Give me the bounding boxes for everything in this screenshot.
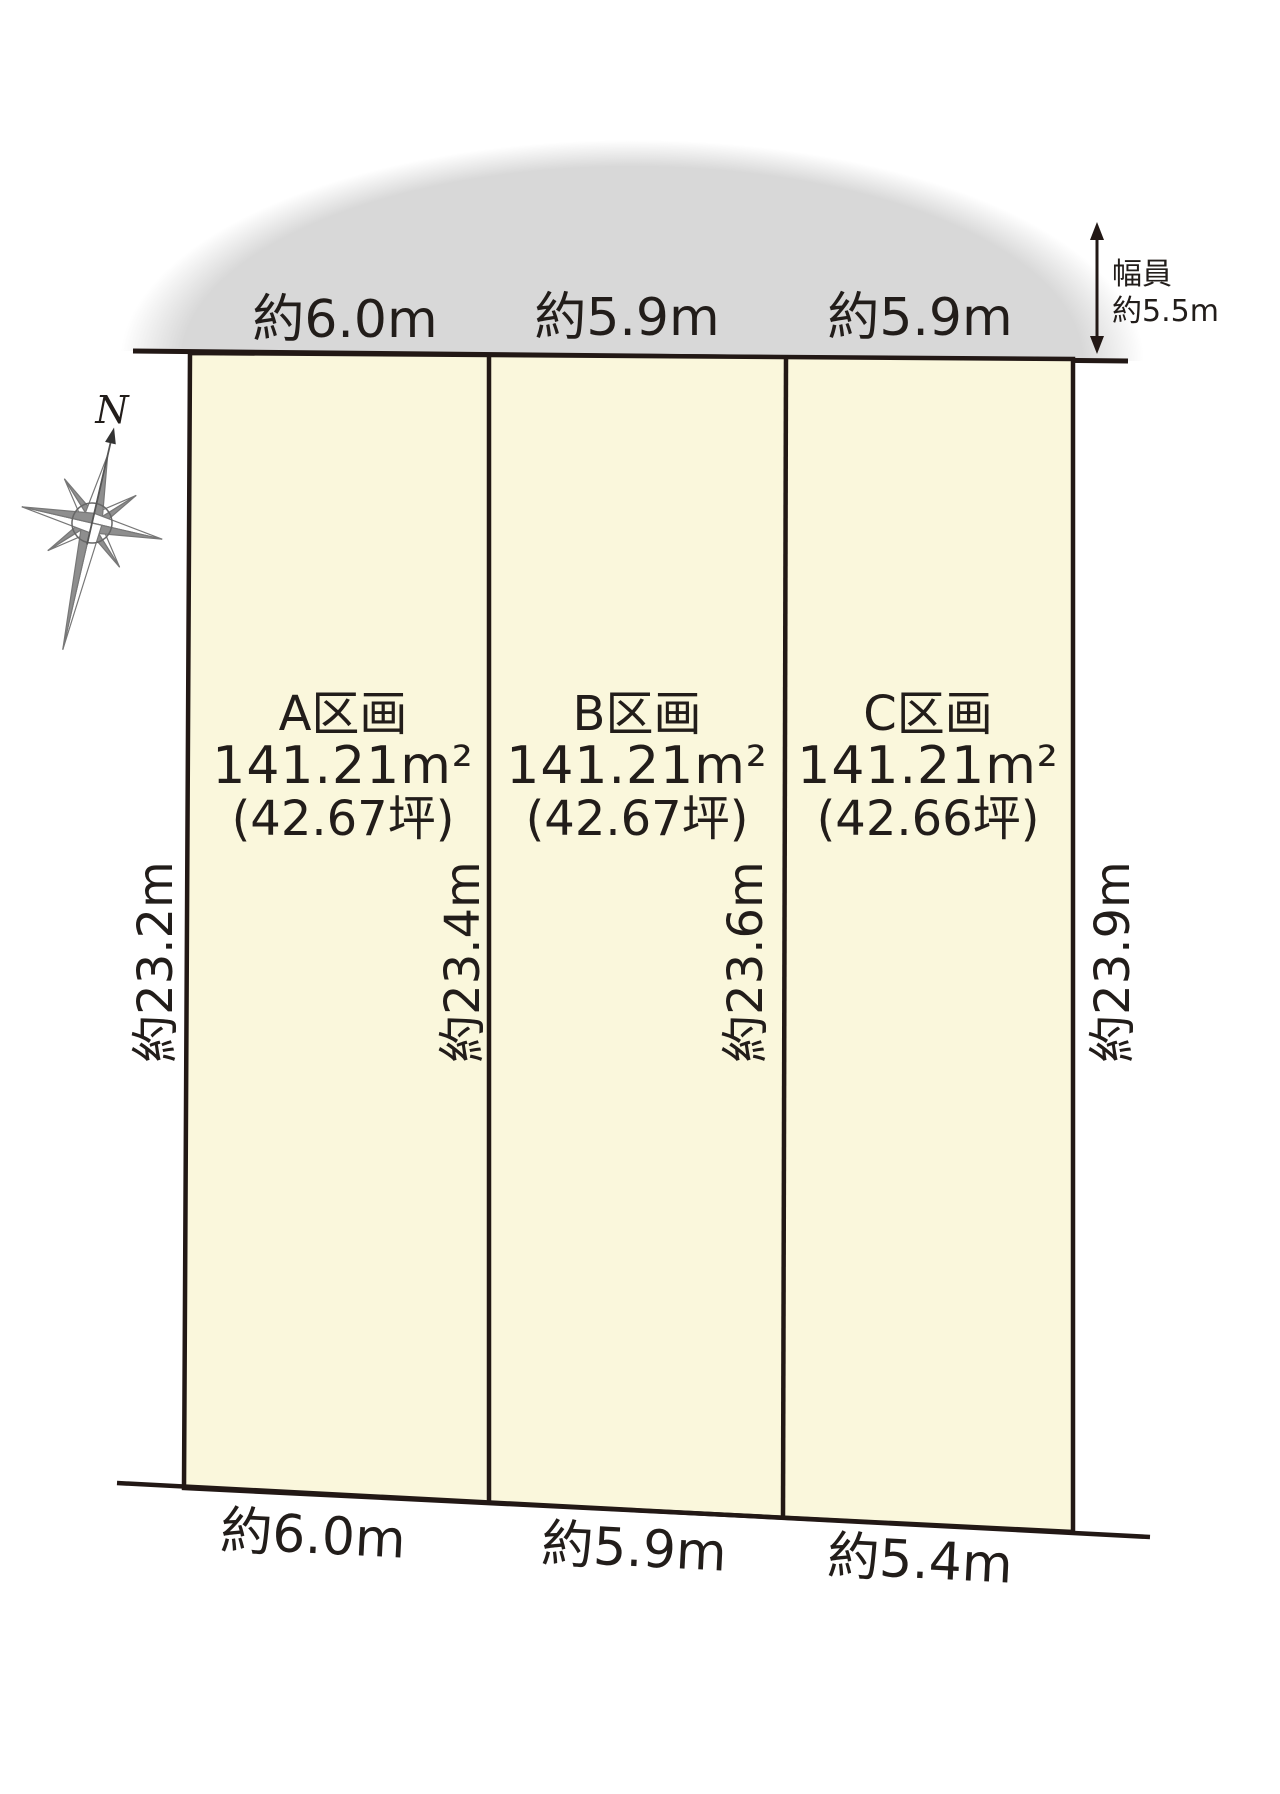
parcel-c-area-sqm: 141.21m²: [778, 740, 1078, 793]
compass-north-label: N: [90, 388, 134, 432]
parcel-c-label: C区画 141.21m² (42.66坪): [778, 688, 1078, 846]
parcels-outline: [184, 353, 1073, 1532]
parcel-divider-bc: [783, 356, 786, 1517]
site-plan-diagram: N 幅員 約5.5m 約6.0m 約5.9m 約5.9m 約6.0m 約5.9m…: [0, 0, 1280, 1794]
top-measurement-a: 約6.0m: [225, 294, 465, 346]
road-width-note-line1: 幅員: [1112, 256, 1219, 293]
parcel-b-label: B区画 141.21m² (42.67坪): [487, 688, 787, 846]
parcel-c-area-tsubo: (42.66坪): [778, 793, 1078, 846]
bottom-measurement-b: 約5.9m: [513, 1517, 755, 1581]
parcel-a-area-sqm: 141.21m²: [193, 740, 493, 793]
compass-rose: [0, 411, 184, 666]
bottom-measurement-a: 約6.0m: [192, 1504, 434, 1568]
parcel-c-name: C区画: [778, 688, 1078, 740]
compass-cardinal-points: [0, 439, 178, 666]
parcel-b-area-sqm: 141.21m²: [487, 740, 787, 793]
top-measurement-c: 約5.9m: [800, 292, 1040, 344]
road-width-note-line2: 約5.5m: [1112, 293, 1219, 330]
depth-measurement-right: 約23.9m: [1089, 832, 1141, 1092]
bottom-measurement-c: 約5.4m: [799, 1529, 1041, 1593]
depth-measurement-left: 約23.2m: [132, 832, 184, 1092]
depth-measurement-ab: 約23.4m: [439, 832, 491, 1092]
parcel-a-area-tsubo: (42.67坪): [193, 793, 493, 846]
depth-measurement-bc: 約23.6m: [722, 832, 774, 1092]
road-width-note: 幅員 約5.5m: [1112, 256, 1219, 330]
parcel-b-name: B区画: [487, 688, 787, 740]
parcel-a-name: A区画: [193, 688, 493, 740]
parcel-b-area-tsubo: (42.67坪): [487, 793, 787, 846]
parcel-a-label: A区画 141.21m² (42.67坪): [193, 688, 493, 846]
top-measurement-b: 約5.9m: [507, 292, 747, 344]
